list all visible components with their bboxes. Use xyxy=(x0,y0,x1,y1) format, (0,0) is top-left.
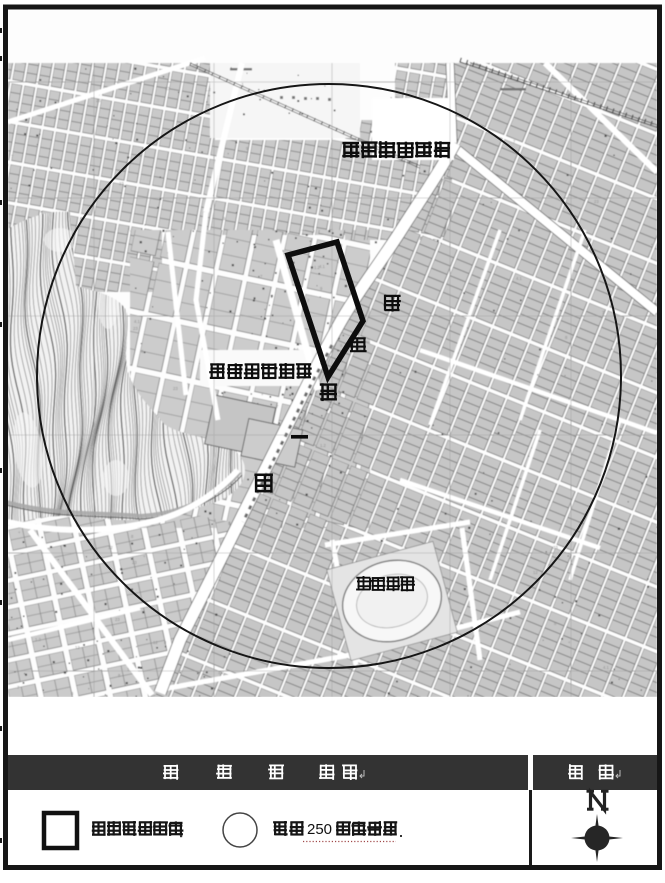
svg-text:1.2: 1.2 xyxy=(205,87,211,92)
svg-text:12: 12 xyxy=(75,645,80,650)
svg-text:250: 250 xyxy=(307,821,332,838)
svg-text:4.1: 4.1 xyxy=(134,319,140,324)
svg-text:23: 23 xyxy=(132,560,137,565)
svg-text:12: 12 xyxy=(533,570,538,575)
svg-text:4.1: 4.1 xyxy=(603,665,609,670)
svg-text:12: 12 xyxy=(108,545,113,550)
svg-text:23: 23 xyxy=(594,199,599,204)
svg-text:4.1: 4.1 xyxy=(516,276,522,281)
svg-text:23: 23 xyxy=(165,86,170,91)
svg-text:1.2: 1.2 xyxy=(314,265,320,270)
svg-text:1.2: 1.2 xyxy=(320,443,326,448)
svg-text:23: 23 xyxy=(119,181,124,186)
svg-text:4.1: 4.1 xyxy=(319,264,325,269)
svg-text:23: 23 xyxy=(115,617,120,622)
svg-text:12: 12 xyxy=(153,640,158,645)
svg-text:23: 23 xyxy=(553,545,558,550)
svg-text:23: 23 xyxy=(173,386,178,391)
svg-text:23: 23 xyxy=(133,326,138,331)
svg-text:23: 23 xyxy=(96,98,101,103)
svg-text:1.2: 1.2 xyxy=(35,637,41,642)
